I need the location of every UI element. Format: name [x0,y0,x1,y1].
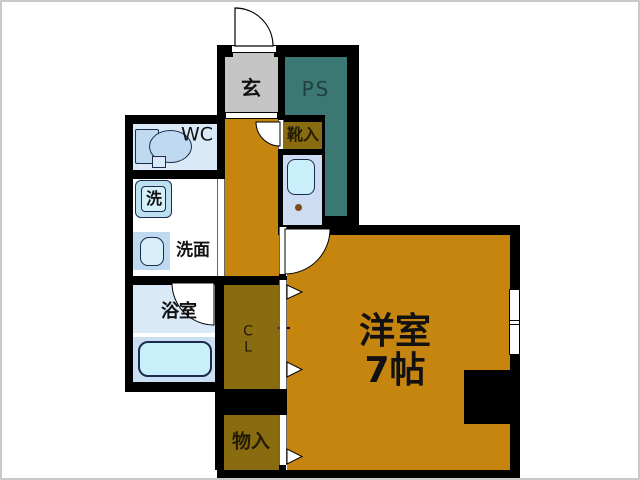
washroom-sliding-door [217,179,225,276]
room-bathroom-upper [133,285,215,335]
wall-wc-top [125,115,225,124]
room-genkan [225,52,278,112]
toilet-room-seat-icon [287,159,315,195]
storage-door-strip [279,415,287,465]
wall-genkan-right [278,45,285,119]
wall-closet-left [215,285,224,470]
room-closet [224,285,279,389]
toilet-door-leaf [278,120,284,149]
wall-genkan-left [217,45,225,179]
window-sash-line-1 [509,320,520,321]
bathtub-icon [138,341,212,377]
entrance-door-arc [235,8,273,46]
wall-left-outer [125,115,133,392]
wall-leftblock-bottom [125,382,222,392]
window-sash-line-2 [509,324,520,325]
wall-shoebox-top [278,115,324,122]
toilet-room-drain-dot [295,204,302,211]
basin-bowl-icon [140,237,164,266]
pillar [464,370,510,424]
entrance-threshold [231,45,277,53]
room-hallway [225,119,279,276]
window-right [509,289,520,355]
room-shoebox [283,122,322,149]
wall-wc-bottom [125,170,225,179]
washing-machine-inner-icon [141,186,166,212]
wall-mainroom-top [278,225,520,235]
toilet-flush-icon [152,156,166,168]
wall-right-upper [347,45,359,225]
wall-ps-divider [322,115,325,225]
closet-folding-door-strip [279,280,287,389]
ps-pipe-column [324,115,347,216]
wall-toilet-left [278,149,283,225]
mainroom-door-leaf [279,227,287,274]
wall-storage-stub [279,465,286,470]
genkan-step-strip [225,112,278,119]
wall-closet-storage-band [217,389,287,415]
wall-washroom-bottom [125,276,287,285]
wall-bottom [217,470,520,480]
room-main [287,235,510,470]
floor-plan: 玄 PS WC 洗 洗面 浴室 靴入 C L 物入 洋室 7帖 [0,0,640,480]
wall-ps-bottom-stub [322,216,348,225]
wall-shoebox-bottom [283,149,324,155]
room-ps [285,55,347,115]
room-storage [224,415,279,470]
